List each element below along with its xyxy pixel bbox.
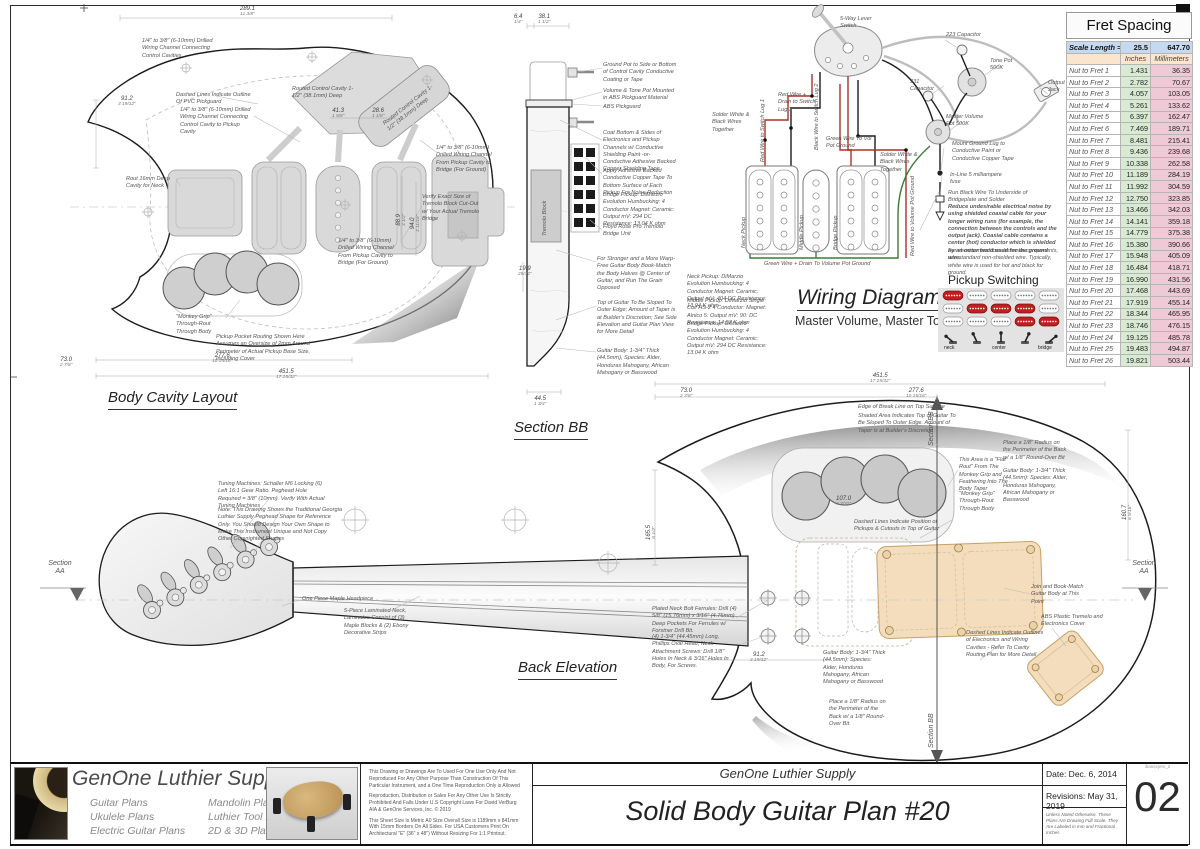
title-pickup-switching: Pickup Switching	[948, 274, 1039, 287]
note-book-match-section: For Stronger and a More Warp-Free Guitar…	[597, 256, 677, 292]
plan-title: Solid Body Guitar Plan #20	[533, 786, 1042, 837]
dim-front-w1: 41.31 5/8"	[332, 108, 344, 119]
title-block-info-cell: Date: Dec. 6, 2014 Revisions: May 31, 20…	[1042, 764, 1126, 844]
note-shaded-taper: Shaded Area Indicates Top of Guitar To B…	[858, 413, 958, 435]
fret-row: Nut to Fret 2017.468443.69	[1067, 285, 1193, 297]
dim-front-h2: 94.03 11/16"	[410, 215, 421, 232]
section-bb-marker-top: Section BB	[928, 411, 936, 446]
fret-spacing-table: Fret Spacing Scale Length = 25.5 647.70 …	[1066, 12, 1192, 367]
label-ground-lug: Mount Ground Lug to Conductive Paint or …	[952, 141, 1014, 163]
label-red-lug1: Red Wire to Switch Lug 1	[760, 99, 767, 162]
section-aa-marker-right: SectionAA	[1126, 560, 1162, 577]
fret-row: Nut to Fret 1916.990431.56	[1067, 273, 1193, 285]
note-ferrules: Plated Neck Bolt Ferrules: Drill (4) 5/8…	[652, 606, 738, 635]
fret-row: Nut to Fret 2619.821503.44	[1067, 355, 1193, 367]
note-floyd-rose: Floyd Rose Pro Tremolo Bridge Unit	[603, 224, 665, 239]
fret-scale-row: Scale Length = 25.5 647.70	[1067, 42, 1193, 54]
drawing-sheet: Dashed Lines Indicate Outline Of PVC Pic…	[0, 0, 1200, 849]
legal-text-1: This Drawing or Drawings Are To Used For…	[369, 769, 524, 789]
back-elevation-drawing	[40, 381, 1168, 764]
fret-row: Nut to Fret 1011.189284.19	[1067, 169, 1193, 181]
label-middle-pickup: Middle Pickup	[799, 215, 806, 250]
note-tremolo-verify: Verify Exact Size of Tremolo Block Cut-O…	[422, 194, 484, 223]
note-pot-mount: Volume & Tone Pot Mounted in ABS Pickgua…	[603, 88, 677, 103]
scale-note: Unless Noted Otherwise, These Plans Are …	[1043, 808, 1126, 840]
label-cap-331: 331 Capacitor	[910, 79, 944, 94]
dim-front-w2: 28.61 1/8"	[372, 108, 384, 119]
note-tuning-machines: Tuning Machines: Schaller M6 Locking (6)…	[218, 481, 328, 510]
spec-bridge-pickup: Bridge Pickup: DiMarzio Evolution Humbuc…	[687, 321, 767, 357]
label-red-vol: Red Wire to Volume Pot Ground	[910, 176, 917, 256]
fret-row: Nut to Fret 1111.992304.59	[1067, 181, 1193, 193]
guitar-jig-photo	[266, 767, 358, 840]
title-block-main-cell: GenOne Luthier Supply Solid Body Guitar …	[532, 764, 1042, 844]
fret-row: Nut to Fret 22.78270.67	[1067, 76, 1193, 88]
fret-table-body: Scale Length = 25.5 647.70 Inches Millim…	[1067, 42, 1193, 367]
fret-row: Nut to Fret 2117.919455.14	[1067, 297, 1193, 309]
label-neck-pickup: Neck Pickup	[741, 217, 748, 248]
label-green-drain: Green Wire + Drain To Volume Pot Ground	[764, 261, 884, 268]
note-neck-screws: (4) 1-3/4" (44.45mm) Long, Phillips Oval…	[652, 634, 738, 670]
dim-back-451: 451.517 25/32"	[870, 373, 890, 384]
subtitle-wiring-diagram: Master Volume, Master Tone	[795, 315, 954, 329]
note-radius-1: Place a 1/8" Radius on the Perimeter of …	[1003, 440, 1069, 462]
fret-row: Nut to Fret 1816.484418.71	[1067, 262, 1193, 274]
fret-row: Nut to Fret 1514.779375.38	[1067, 227, 1193, 239]
dim-back-160: 160.76 5/16"	[1122, 505, 1133, 520]
note-peghead: Note: This Drawing Shows the Traditional…	[218, 507, 342, 543]
legal-text-3: This Sheet Size Is Metric A0 Size Overal…	[369, 818, 524, 838]
switch-pos-label-neck: neck	[944, 345, 955, 351]
note-abs-cover: ABS Plastic Tremelo and Electronics Cove…	[1041, 614, 1107, 629]
dim-sec-left: 19.925/32"	[518, 266, 532, 277]
fret-row: Nut to Fret 2218.344465.95	[1067, 308, 1193, 320]
revisions-field: Revisions: May 31, 2019	[1043, 786, 1126, 808]
fret-row: Nut to Fret 67.469189.71	[1067, 123, 1193, 135]
note-body-spec-2: Guitar Body: 1-3/4" Thick (44.5mm): Spec…	[823, 650, 887, 686]
label-solder-white-2: Solder White & Black Wires Together	[880, 152, 924, 174]
pickup-switching-panel: neck center bridge	[938, 288, 1064, 352]
switch-pos-label-bridge: bridge	[1038, 345, 1052, 351]
title-block-legal-cell: This Drawing or Drawings Are To Used For…	[360, 764, 532, 844]
acoustic-guitar-photo	[14, 767, 68, 840]
note-channel-bridge-1: 1/4" to 3/8" (6-10mm) Drilled Wiring Cha…	[436, 145, 500, 174]
section-aa-marker-left: SectionAA	[42, 560, 78, 577]
fret-row: Nut to Fret 11.43136.35	[1067, 65, 1193, 77]
section-bb-marker-bottom: Section BB	[928, 713, 936, 748]
dim-sec-t2: 38.11 1/2"	[538, 14, 550, 25]
label-fuse: In-Line 5 milliampere fuse	[950, 172, 1006, 187]
dim-back-277: 277.610 15/16"	[906, 388, 926, 399]
dim-sec-bottom: 44.51 3/4"	[534, 396, 546, 407]
note-body-spec-section: Guitar Body: 1-3/4" Thick (44.5mm), Spec…	[597, 348, 677, 377]
fret-row: Nut to Fret 1414.141359.18	[1067, 215, 1193, 227]
note-pvc-pickguard: Dashed Lines Indicate Outline Of PVC Pic…	[176, 92, 256, 107]
title-wiring-diagram: Wiring Diagram	[797, 286, 942, 311]
note-bridge-spec-section: Bridge Pickup: DiMarzio Evolution Humbuc…	[603, 192, 679, 228]
label-master-vol: Master Volume Pot 500K	[946, 114, 992, 129]
note-monkey-grip-front: "Monkey Grip" Through-Rout Through Body	[176, 314, 228, 336]
dim-back-107: 107.04 7/32"	[836, 496, 851, 507]
dim-front-h1: 88.93 1/2"	[396, 214, 407, 226]
dim-front-b0: 73.02 7/8"	[60, 357, 72, 368]
dim-back-73: 73.02 7/8"	[680, 388, 692, 399]
label-black-lug2: Black Wire to Switch Lug 2	[814, 84, 821, 150]
fret-row: Nut to Fret 1715.948405.09	[1067, 250, 1193, 262]
fret-row: Nut to Fret 89.436239.68	[1067, 146, 1193, 158]
fret-row: Nut to Fret 2318.746476.15	[1067, 320, 1193, 332]
note-taper-section: Top of Guitar To Be Sloped To Outer Edge…	[597, 300, 677, 336]
title-section-bb: Section BB	[514, 420, 588, 440]
fret-row: Nut to Fret 34.057103.05	[1067, 88, 1193, 100]
fret-row: Nut to Fret 2519.483494.87	[1067, 343, 1193, 355]
note-abs-pickguard: ABS Pickguard	[603, 104, 657, 111]
dim-sec-t1: 6.41/4"	[514, 14, 522, 25]
plan-categories-col1: Guitar Plans Ukulele Plans Electric Guit…	[90, 796, 185, 839]
label-solder-white-1: Solder White & Black Wires Together	[712, 112, 756, 134]
label-bridge-pickup: Bridge Pickup	[833, 215, 840, 250]
section-bb-drawing	[523, 23, 602, 395]
note-laminated-neck: 5-Piece Laminated Neck, Laminates Consis…	[344, 608, 418, 637]
note-channel-control: 1/4" to 3/8" (6-10mm) Drilled Wiring Cha…	[142, 38, 216, 60]
fret-row: Nut to Fret 1212.750323.85	[1067, 192, 1193, 204]
legal-text-2: Reproduction, Distribution or Sales For …	[369, 793, 524, 813]
title-body-cavity: Body Cavity Layout	[108, 390, 237, 410]
dim-front-b2: 451.517 25/32"	[276, 369, 296, 380]
note-radius-2: Place a 1/8" Radius on the Perimeter of …	[829, 699, 889, 728]
note-tremolo-block: Tremolo Block	[542, 201, 549, 236]
note-body-spec-1: Guitar Body: 1-3/4" Thick (44.5mm): Spec…	[1003, 468, 1069, 504]
title-block: GenOne Luthier Supplies Guitar Plans Uku…	[10, 762, 1188, 846]
label-green-vol: Green Wire To Vol Pot Ground	[826, 136, 872, 151]
title-back-elevation: Back Elevation	[518, 660, 617, 680]
dim-front-left: 91.23 19/32"	[118, 96, 136, 107]
sheet-number: 02	[1127, 770, 1188, 825]
note-control-cavity: Routed Control Cavity 1-1/2" (38.1mm) De…	[292, 86, 356, 101]
label-tone-pot: Tone Pot 500K	[990, 58, 1024, 73]
note-cavity-outlines: Dashed Lines Indicate Outlines of Electr…	[966, 630, 1046, 659]
fret-row: Nut to Fret 1313.466342.03	[1067, 204, 1193, 216]
note-dashed-pickups: Dashed Lines Indicate Position of Pickup…	[854, 519, 954, 534]
note-neck-cavity: Rout 16mm Deep Cavity for Neck	[126, 176, 180, 191]
label-5way-switch: 5-Way Lever Switch	[840, 16, 882, 31]
fret-row: Nut to Fret 2419.125485.78	[1067, 331, 1193, 343]
fret-row: Nut to Fret 78.481215.41	[1067, 134, 1193, 146]
label-black-bridge: Run Black Wire To Underside of Bridgepla…	[948, 190, 1038, 205]
fret-row: Nut to Fret 910.338262.58	[1067, 157, 1193, 169]
note-book-match-back: Join and Book-Match Guitar Body at This …	[1031, 584, 1091, 606]
company-name: GenOne Luthier Supply	[533, 764, 1042, 786]
fret-units-row: Inches Millimeters	[1067, 53, 1193, 65]
label-cap-223: 223 Capacitor	[946, 32, 984, 39]
dim-front-top: 289.111 3/8"	[240, 6, 255, 17]
pickup-switching-grid	[938, 288, 1064, 348]
fret-row: Nut to Fret 1615.380390.66	[1067, 239, 1193, 251]
switch-pos-label-center: center	[992, 345, 1006, 351]
title-block-logo-cell: GenOne Luthier Supplies Guitar Plans Uku…	[10, 764, 360, 844]
note-break-line: Edge of Break Line on Top Surface	[858, 404, 950, 411]
note-channel-bridge-2: 1/4" to 3/8" (6-10mm) Drilled Wiring Cha…	[338, 238, 402, 267]
dim-back-165: 165.56 1/2"	[646, 525, 657, 540]
date-field: Date: Dec. 6, 2014	[1043, 764, 1126, 786]
dim-front-b1: 277.610 15/16"	[212, 353, 232, 364]
note-headpiece: One Piece Maple Headpiece	[302, 596, 384, 603]
note-channel-pickup: 1/4" to 3/8" (6-10mm) Drilled Wiring Cha…	[180, 107, 254, 136]
fret-table-title: Fret Spacing	[1066, 12, 1192, 39]
dim-back-91: 91.23 19/32"	[750, 652, 768, 663]
title-block-number-cell: ibanezjem_2 02	[1126, 764, 1188, 844]
fret-row: Nut to Fret 56.397162.47	[1067, 111, 1193, 123]
note-ground-pot: Ground Pot to Side or Bottom of Control …	[603, 62, 677, 84]
fret-row: Nut to Fret 45.261133.62	[1067, 99, 1193, 111]
